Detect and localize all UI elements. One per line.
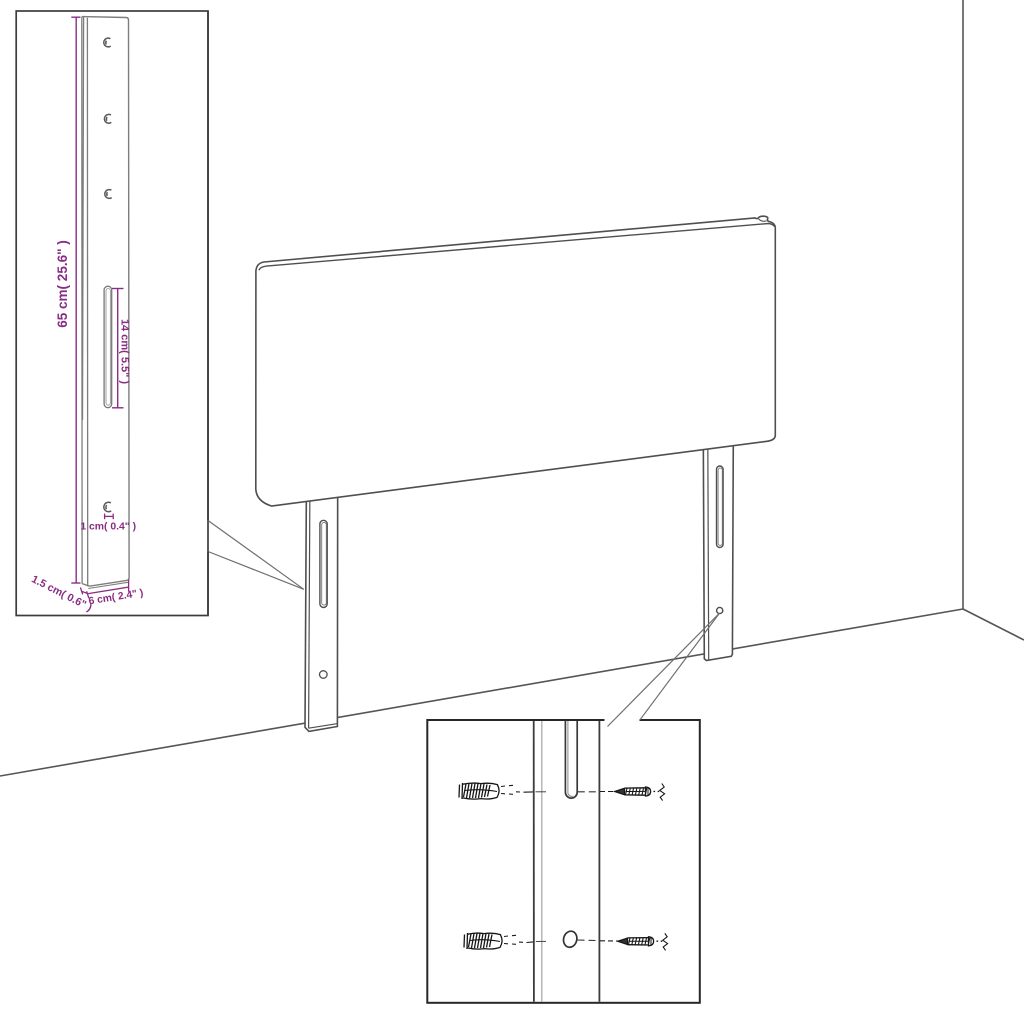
svg-text:65 cm( 25.6" ): 65 cm( 25.6" ) xyxy=(55,240,70,327)
svg-text:14 cm( 5.5" ): 14 cm( 5.5" ) xyxy=(119,319,131,384)
svg-text:1 cm( 0.4" ): 1 cm( 0.4" ) xyxy=(80,521,136,532)
